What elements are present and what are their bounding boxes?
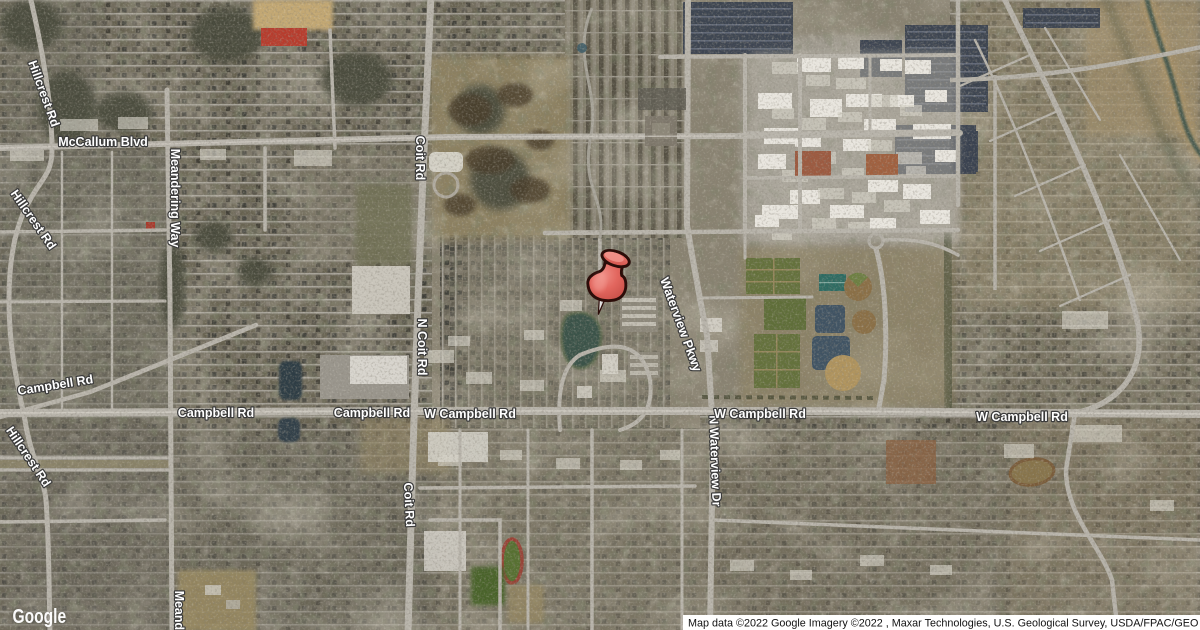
svg-text:Map data ©2022 Google Imagery: Map data ©2022 Google Imagery ©2022 , Ma… bbox=[688, 618, 1198, 630]
svg-text:N Coit Rd: N Coit Rd bbox=[415, 319, 429, 376]
svg-text:W Campbell Rd: W Campbell Rd bbox=[424, 407, 516, 421]
svg-text:Google: Google bbox=[13, 605, 67, 628]
svg-text:Meandering Way: Meandering Way bbox=[168, 149, 182, 248]
svg-text:McCallum Blvd: McCallum Blvd bbox=[58, 135, 148, 149]
svg-text:W Campbell Rd: W Campbell Rd bbox=[714, 407, 806, 421]
svg-text:Meandering Way: Meandering Way bbox=[172, 591, 186, 630]
svg-text:W Campbell Rd: W Campbell Rd bbox=[976, 410, 1068, 424]
svg-text:Coit Rd: Coit Rd bbox=[413, 136, 427, 180]
svg-text:Campbell Rd: Campbell Rd bbox=[334, 406, 410, 420]
svg-text:Coit Rd: Coit Rd bbox=[401, 482, 417, 527]
svg-text:Campbell Rd: Campbell Rd bbox=[178, 406, 254, 420]
